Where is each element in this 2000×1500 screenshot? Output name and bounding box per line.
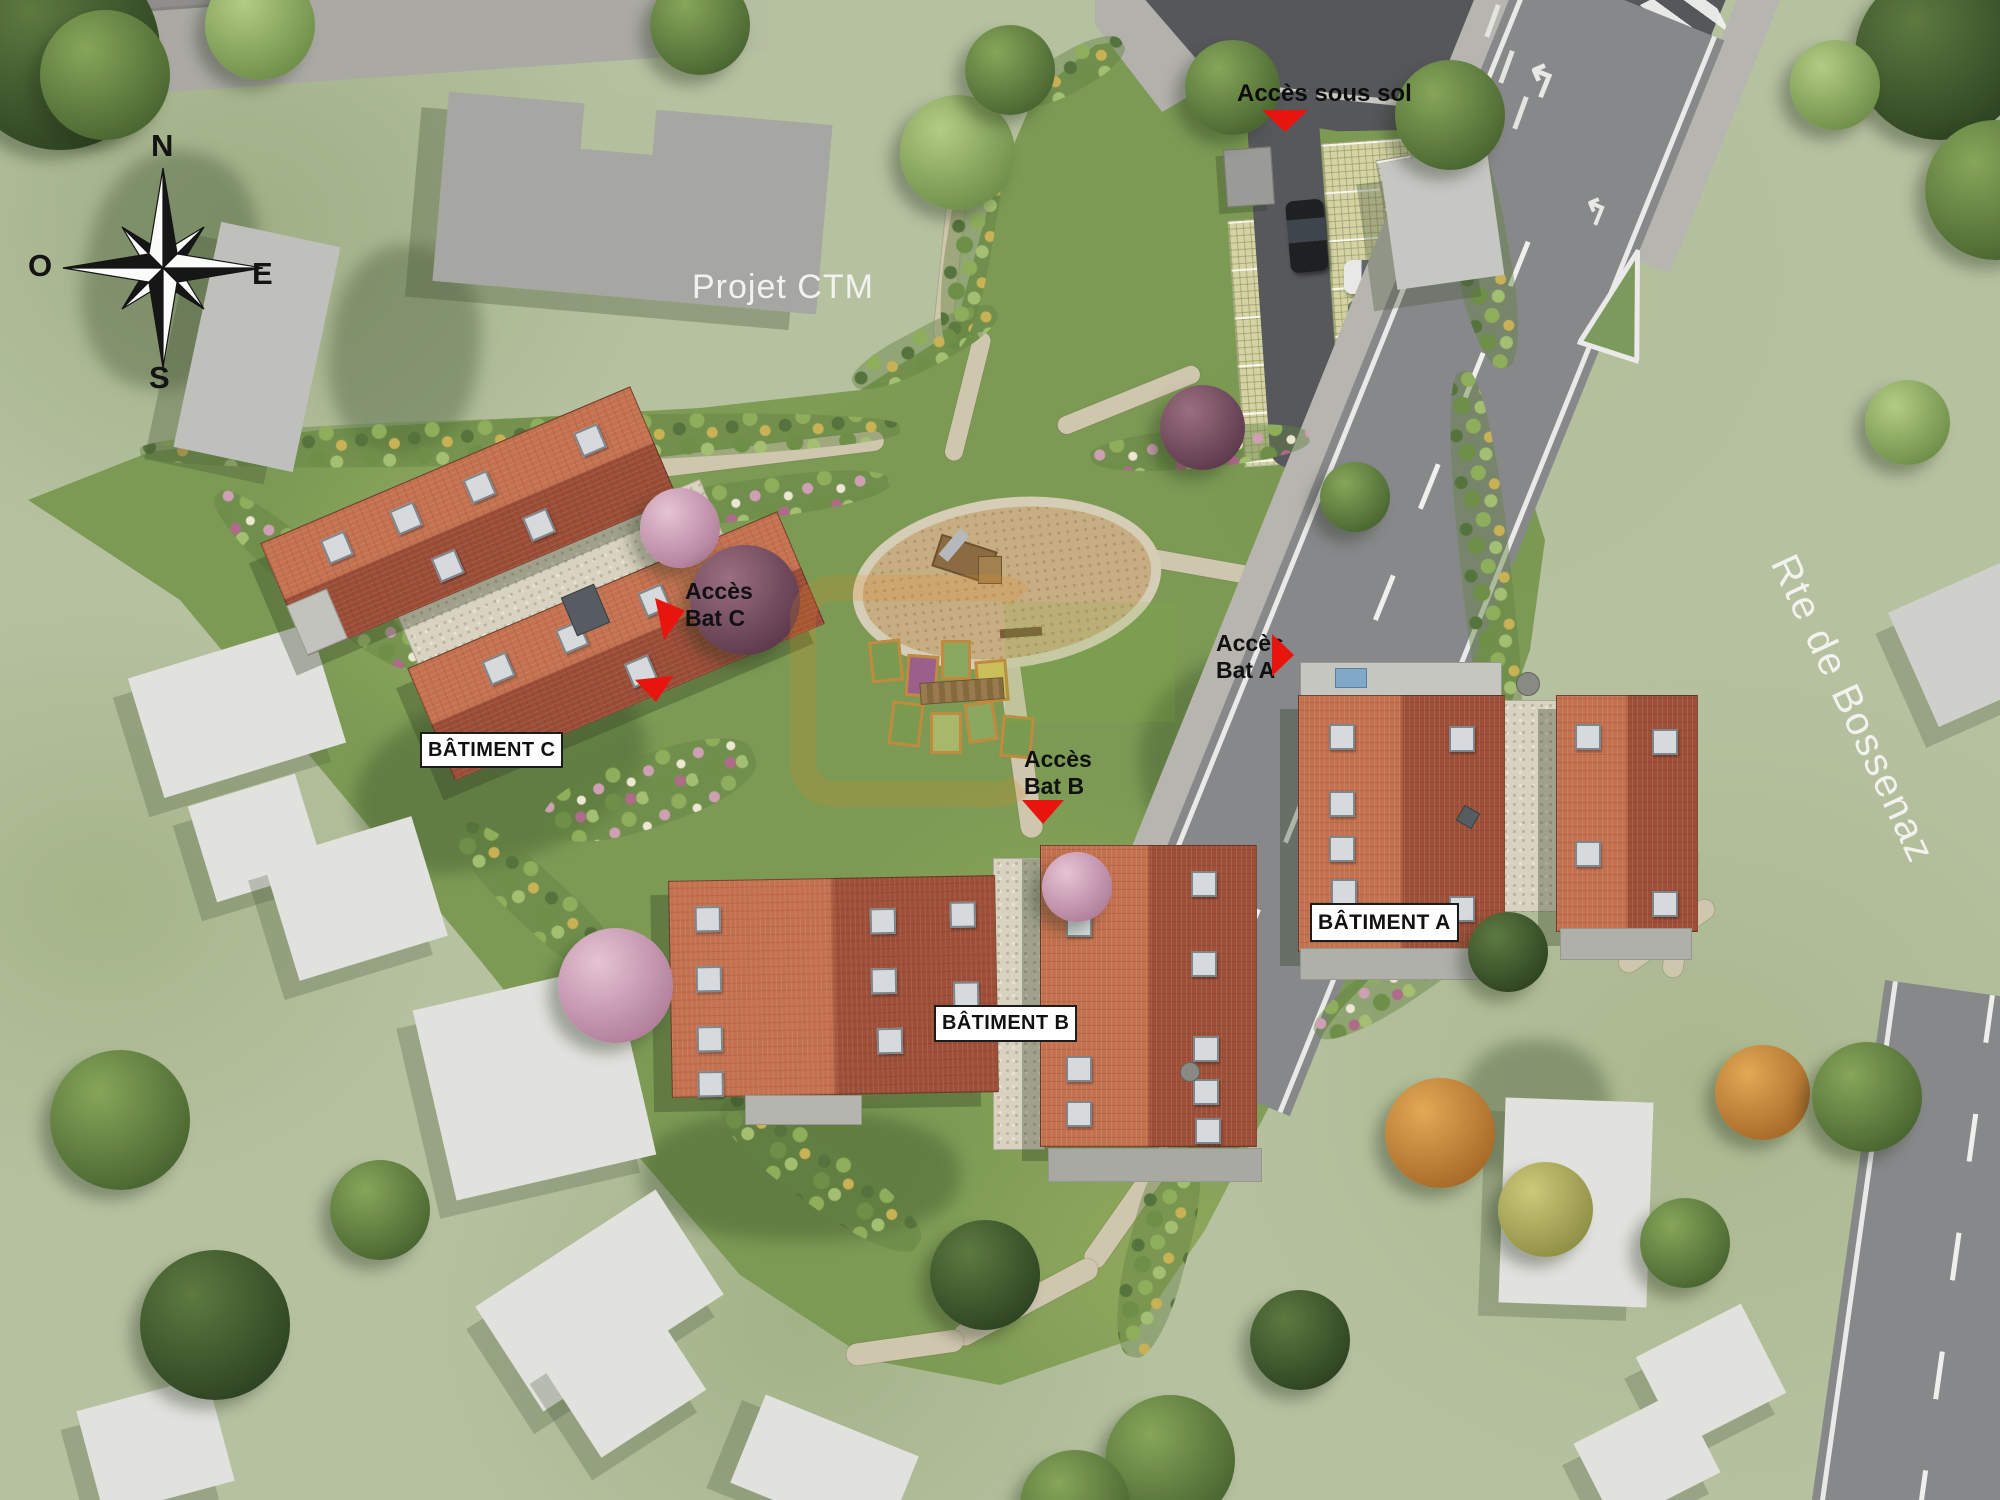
skylight [1195,1118,1221,1144]
tree [1498,1162,1593,1257]
watermark [1005,602,1175,722]
tree [1468,912,1548,992]
shed [1223,146,1275,207]
site-plan: ↰ ↰ Rte de Bossenaz Projet CTM [0,0,2000,1500]
skylight [1331,879,1357,905]
skylight [870,908,896,934]
skylight [696,966,722,992]
flowering-tree [558,928,673,1043]
tree [1790,40,1880,130]
tree [1925,120,2000,260]
access-bat-b-line2: Bat B [1024,773,1092,800]
compass-south-label: S [149,360,170,396]
courtyard-b [993,858,1045,1150]
terrace-spa [1335,668,1367,688]
terrace [1048,1148,1262,1182]
skylight [481,652,515,686]
autumn-tree [1715,1045,1810,1140]
skylight [1191,871,1217,897]
tree [650,0,750,75]
skylight [522,508,556,542]
skylight [953,981,979,1007]
compass-rose [48,153,278,383]
flowering-tree [1042,852,1112,922]
terrace [745,1095,862,1125]
skylight [950,902,976,928]
tree [1395,60,1505,170]
skylight [1193,1036,1219,1062]
roof-vent [1456,805,1481,830]
tree [965,25,1055,115]
building-a2-roof [1556,695,1698,932]
car-black [1285,198,1329,273]
road-name-label: Rte de Bossenaz [1761,548,1943,870]
flowering-tree [640,488,720,568]
tree [50,1050,190,1190]
tree [40,10,170,140]
autumn-tree [1385,1078,1495,1188]
skylight [1652,729,1678,755]
access-bat-c-label: Accès Bat C [685,578,753,632]
courtyard-a [1500,700,1560,912]
access-bat-c-line1: Accès [685,578,753,605]
tree [1812,1042,1922,1152]
skylight [573,423,607,457]
terrace [1560,928,1692,960]
building-c-label: BÂTIMENT C [420,732,563,768]
tree [1250,1290,1350,1390]
building-b1-roof [668,875,999,1098]
building-a-label: BÂTIMENT A [1310,903,1459,942]
neighbor-building [730,1395,919,1500]
neighbor-building [1888,562,2000,727]
tree [1865,380,1950,465]
skylight [463,470,497,504]
skylight [697,1071,723,1097]
tree [1160,385,1245,470]
access-sous-sol-label: Accès sous sol [1237,80,1412,108]
skylight [1575,841,1601,867]
skylight [1191,951,1217,977]
skylight [1575,724,1601,750]
skylight [871,968,897,994]
skylight [431,549,465,583]
building-b-label: BÂTIMENT B [934,1005,1077,1042]
tree [1640,1198,1730,1288]
skylight [1652,891,1678,917]
access-bat-b-line1: Accès [1024,746,1092,773]
tree [140,1250,290,1400]
access-bat-c-line2: Bat C [685,605,753,632]
skylight [1066,1101,1092,1127]
compass-east-label: E [252,256,273,292]
ctm-label: Projet CTM [692,268,874,307]
access-bat-b-label: Accès Bat B [1024,746,1092,800]
skylight [1193,1079,1219,1105]
garden-table [1180,1062,1200,1082]
skylight [1066,1056,1092,1082]
ctm-notch [581,91,658,155]
roof-terrace [1300,662,1502,698]
skylight [320,531,354,565]
tree [930,1220,1040,1330]
skylight [1329,724,1355,750]
skylight [695,906,721,932]
skylight [1329,836,1355,862]
compass-north-label: N [151,128,173,164]
garden-table [1516,672,1540,696]
tree [1320,462,1390,532]
compass-west-label: O [28,248,52,284]
skylight [389,501,423,535]
tree [330,1160,430,1260]
skylight [697,1026,723,1052]
skylight [1449,726,1475,752]
road-center-dashes [1912,995,1995,1500]
skylight [1329,791,1355,817]
skylight [877,1028,903,1054]
